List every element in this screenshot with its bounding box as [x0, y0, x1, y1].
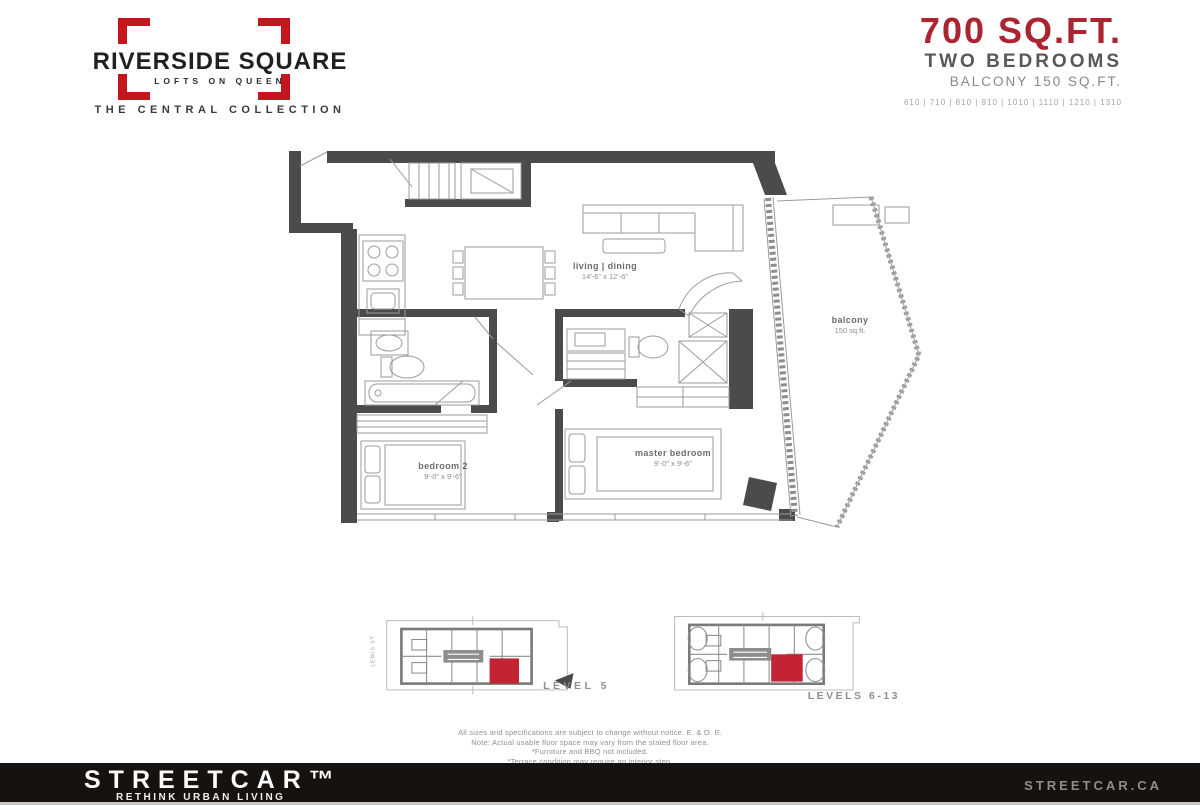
keyplan-level5-highlighted-unit — [490, 658, 519, 683]
floorplan-drawing — [285, 143, 925, 538]
riverside-square-logo: RIVERSIDE SQUARE LOFTS ON QUEEN THE CENT… — [70, 10, 375, 128]
living-dining-label: living | dining 14'-6" x 12'-6" — [540, 261, 670, 281]
streetcar-website: STREETCAR.CA — [1024, 778, 1162, 793]
keyplan-street-label: LEWIS ST — [371, 635, 377, 666]
master-bedroom-label: master bedroom 9'-0" x 9'-6" — [603, 448, 743, 468]
logo-collection: THE CENTRAL COLLECTION — [70, 104, 370, 116]
logo-bracket-top-left-icon — [118, 18, 150, 44]
unit-header: 700 SQ.FT. TWO BEDROOMS BALCONY 150 SQ.F… — [904, 14, 1122, 107]
keyplan-levels6-13-highlighted-unit — [771, 654, 803, 681]
unit-numbers: 610 | 710 | 810 | 910 | 1010 | 1110 | 12… — [904, 98, 1122, 107]
unit-size: 700 SQ.FT. — [904, 14, 1122, 48]
keyplan-level-5-label: LEVEL 5 — [543, 680, 610, 692]
unit-balcony-size: BALCONY 150 SQ.FT. — [904, 74, 1122, 89]
keyplan-levels-6-13-label: LEVELS 6-13 — [808, 690, 900, 702]
floorplan-page: RIVERSIDE SQUARE LOFTS ON QUEEN THE CENT… — [0, 0, 1200, 805]
floorplan: living | dining 14'-6" x 12'-6" balcony … — [285, 143, 925, 538]
unit-type: TWO BEDROOMS — [904, 51, 1122, 73]
bedroom2-label: bedroom 2 9'-0" x 9'-6" — [393, 461, 493, 481]
logo-title: RIVERSIDE SQUARE — [70, 48, 370, 76]
disclaimer-line-3: *Furniture and BBQ not included. — [360, 747, 820, 757]
keyplan-level-5-drawing — [372, 612, 582, 709]
streetcar-logo: STREETCAR™ — [84, 766, 342, 795]
logo-subtitle: LOFTS ON QUEEN — [70, 76, 370, 86]
keyplan-levels-6-13: LEVELS 6-13 — [662, 610, 902, 718]
balcony-label: balcony 150 sq.ft. — [780, 315, 920, 335]
disclaimer-line-2: Note: Actual usable floor space may vary… — [360, 738, 820, 748]
keyplan-level-5: LEWIS ST LEVEL 5 — [372, 612, 612, 720]
disclaimer-line-1: All sizes and specifications are subject… — [360, 728, 820, 738]
disclaimer: All sizes and specifications are subject… — [360, 728, 820, 766]
logo-bracket-top-right-icon — [258, 18, 290, 44]
footer-bar: STREETCAR™ RETHINK URBAN LIVING STREETCA… — [0, 763, 1200, 805]
